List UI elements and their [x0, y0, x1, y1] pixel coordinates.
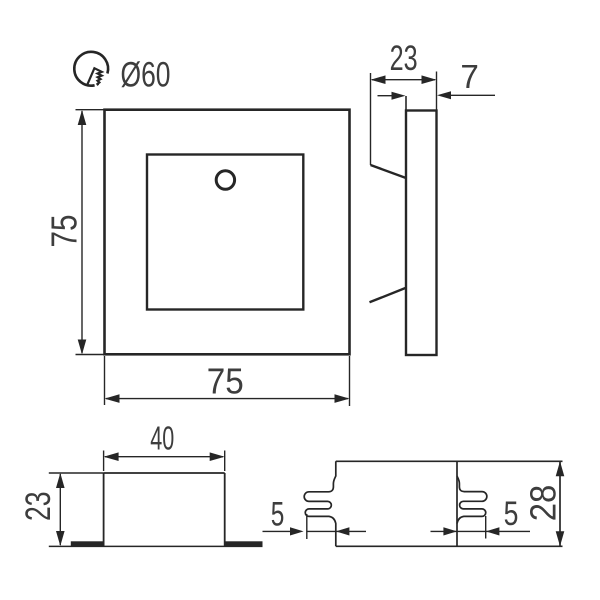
svg-text:23: 23 [390, 39, 418, 78]
svg-text:40: 40 [150, 420, 174, 457]
svg-text:23: 23 [18, 491, 58, 521]
svg-text:5: 5 [504, 495, 519, 533]
svg-text:Ø60: Ø60 [121, 55, 171, 94]
svg-text:5: 5 [271, 496, 285, 534]
svg-text:28: 28 [522, 485, 563, 522]
svg-text:75: 75 [44, 215, 85, 248]
svg-text:75: 75 [207, 361, 244, 402]
svg-text:7: 7 [460, 58, 479, 95]
